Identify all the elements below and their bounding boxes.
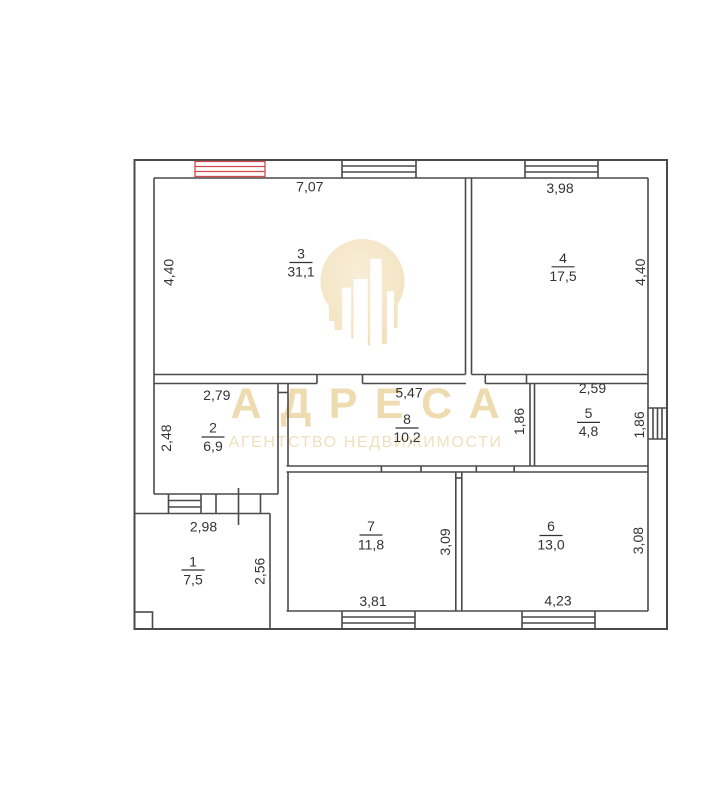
svg-text:2,79: 2,79 [203, 387, 230, 403]
svg-text:6: 6 [547, 518, 555, 534]
svg-text:10,2: 10,2 [393, 429, 420, 445]
svg-text:2,48: 2,48 [158, 424, 174, 451]
svg-text:3,09: 3,09 [437, 528, 453, 555]
svg-text:4,40: 4,40 [161, 259, 177, 286]
svg-text:5,47: 5,47 [395, 385, 422, 401]
svg-text:3: 3 [297, 245, 305, 261]
svg-text:2,59: 2,59 [579, 380, 606, 396]
svg-text:4,8: 4,8 [579, 423, 599, 439]
svg-text:3,08: 3,08 [630, 527, 646, 554]
svg-text:13,0: 13,0 [537, 537, 564, 553]
svg-text:АГЕНТСТВО НЕДВИЖИМОСТИ: АГЕНТСТВО НЕДВИЖИМОСТИ [229, 434, 503, 451]
svg-text:7,5: 7,5 [183, 572, 203, 588]
svg-text:7: 7 [367, 518, 375, 534]
svg-text:31,1: 31,1 [287, 264, 314, 280]
svg-text:3,98: 3,98 [546, 180, 573, 196]
svg-text:АДРЕСА: АДРЕСА [230, 380, 517, 428]
svg-text:1: 1 [189, 554, 197, 570]
svg-text:5: 5 [585, 405, 593, 421]
svg-text:4,40: 4,40 [632, 258, 648, 285]
svg-text:2: 2 [209, 420, 217, 436]
svg-text:4,23: 4,23 [544, 593, 571, 609]
svg-text:1,86: 1,86 [631, 411, 647, 438]
svg-text:4: 4 [559, 250, 567, 266]
svg-text:7,07: 7,07 [296, 179, 323, 195]
svg-text:11,8: 11,8 [358, 537, 384, 553]
svg-text:2,56: 2,56 [252, 557, 268, 584]
svg-text:3,81: 3,81 [359, 593, 386, 609]
svg-text:17,5: 17,5 [549, 268, 576, 284]
svg-text:2,98: 2,98 [190, 519, 217, 535]
svg-text:8: 8 [403, 411, 411, 427]
svg-text:6,9: 6,9 [203, 438, 223, 454]
svg-text:1,86: 1,86 [511, 408, 527, 435]
